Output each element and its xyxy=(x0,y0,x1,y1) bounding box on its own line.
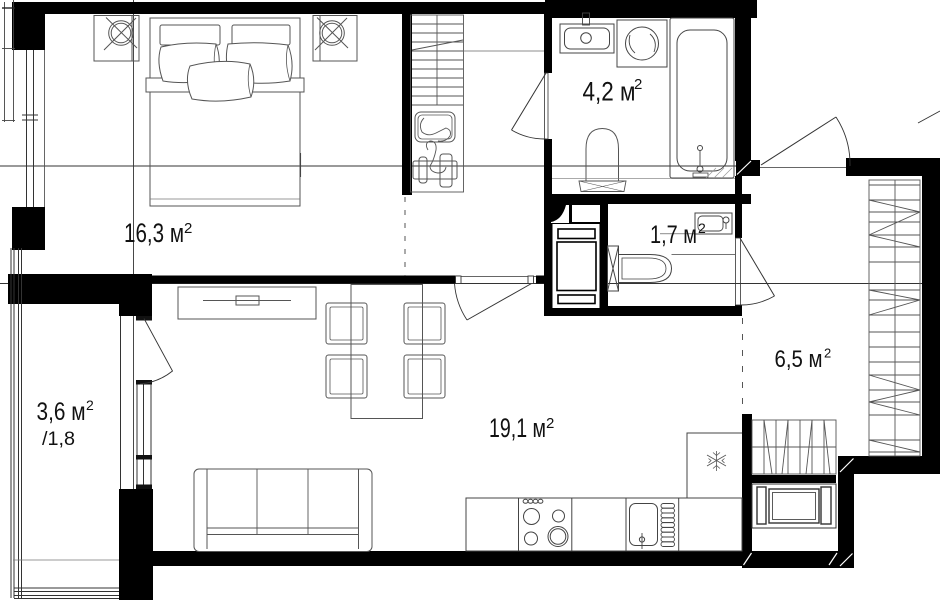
svg-text:2: 2 xyxy=(546,415,554,432)
svg-text:1,7 м: 1,7 м xyxy=(650,221,697,249)
svg-text:2: 2 xyxy=(86,397,94,413)
svg-text:2: 2 xyxy=(824,346,831,361)
svg-text:2: 2 xyxy=(184,220,192,237)
svg-text:19,1 м: 19,1 м xyxy=(489,413,546,443)
svg-text:3,6 м: 3,6 м xyxy=(37,398,86,426)
svg-text:2: 2 xyxy=(634,76,642,93)
svg-text:16,3 м: 16,3 м xyxy=(124,218,184,248)
svg-text:2: 2 xyxy=(698,220,706,236)
svg-text:4,2 м: 4,2 м xyxy=(583,77,636,107)
svg-text:/1,8: /1,8 xyxy=(42,429,75,450)
svg-text:6,5 м: 6,5 м xyxy=(775,346,823,373)
